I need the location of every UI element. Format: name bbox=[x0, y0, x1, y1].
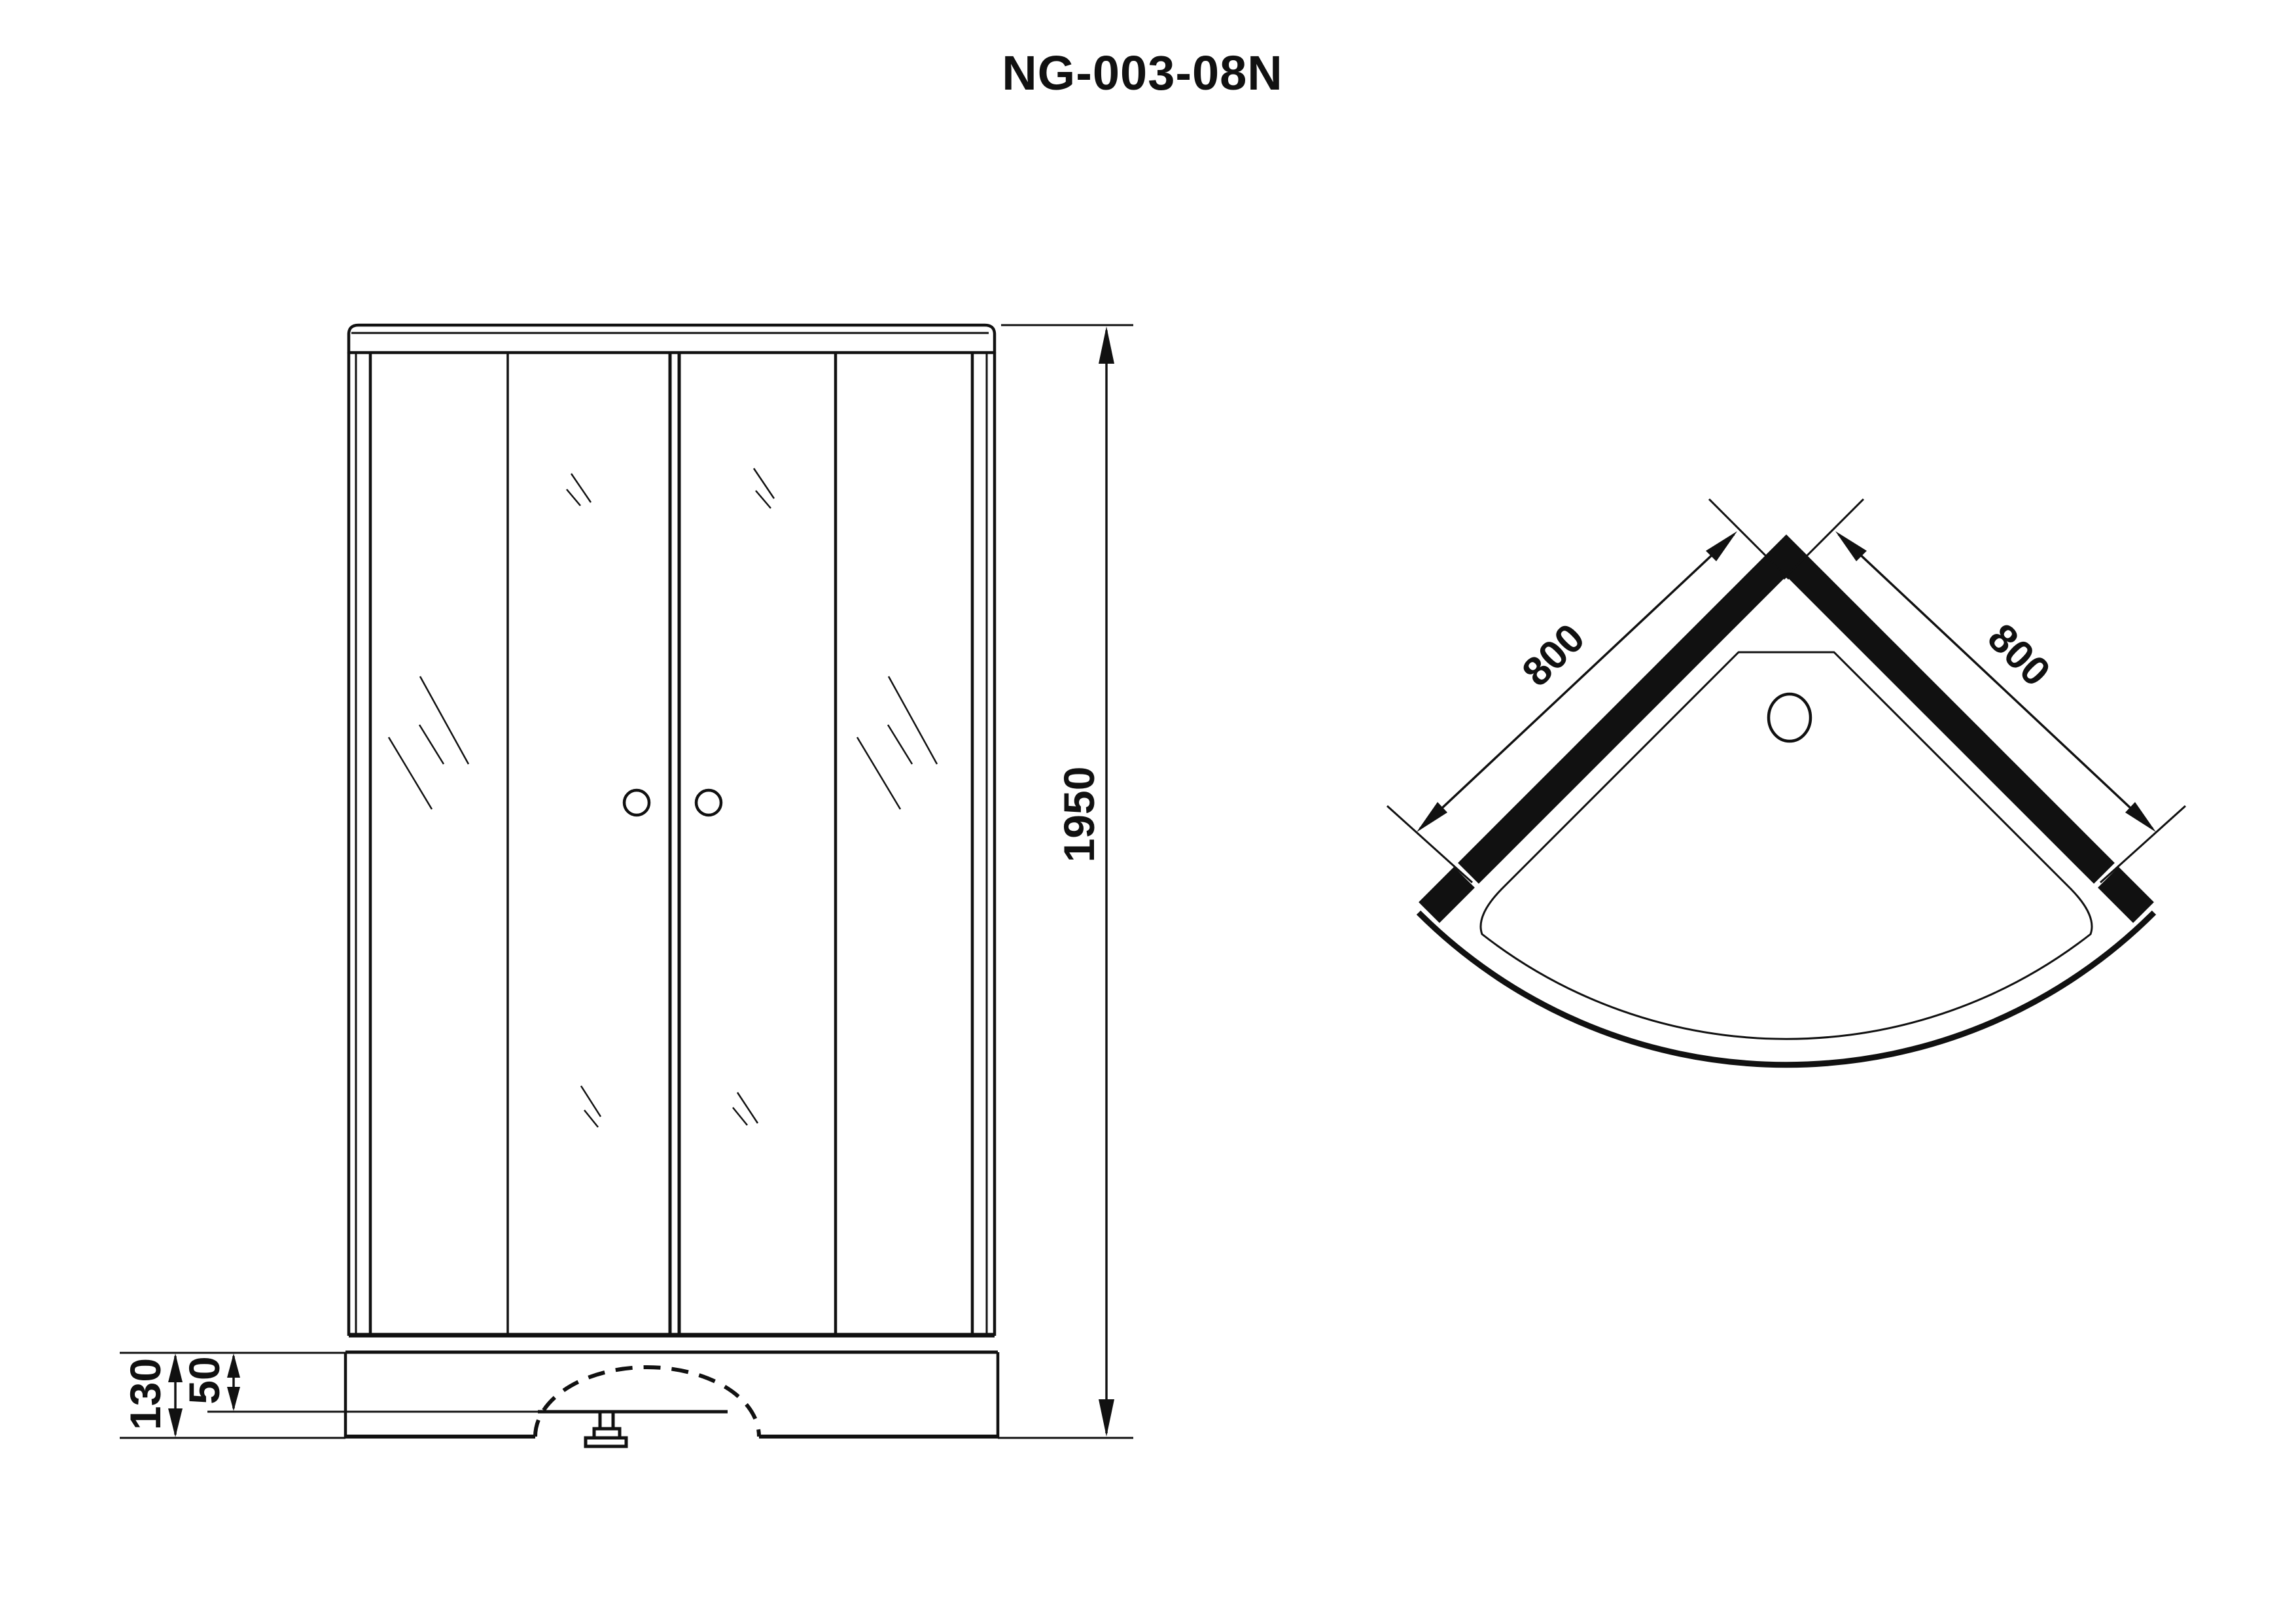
front-view bbox=[207, 325, 998, 1446]
dimension-label-left-side: 800 bbox=[1514, 616, 1594, 695]
apron-arch-dashed bbox=[535, 1367, 759, 1437]
dimension-label-base: 130 bbox=[121, 1358, 169, 1430]
arrow-up-icon bbox=[1099, 326, 1114, 364]
dimension-label-rim: 50 bbox=[180, 1356, 228, 1404]
arrow-down-icon bbox=[168, 1408, 183, 1437]
dimension-side-left: 800 bbox=[1387, 499, 1789, 882]
corner-wall-panels bbox=[1429, 545, 2144, 913]
extension-line-apex bbox=[1709, 499, 1789, 579]
dimension-tray-rim: 50 bbox=[180, 1353, 240, 1411]
right-door-handle bbox=[696, 790, 721, 815]
right-wall-end-profile bbox=[2108, 877, 2144, 913]
tray-inner-basin-outline bbox=[1481, 652, 2092, 1039]
technical-drawing-sheet: NG-003-08N bbox=[0, 0, 2296, 1623]
glass-hatch-marks bbox=[389, 468, 937, 1127]
arrow-up-icon bbox=[227, 1353, 240, 1378]
dimension-overall-height: 1950 bbox=[998, 325, 1133, 1438]
arrow-down-icon bbox=[227, 1387, 240, 1411]
left-wall-end-profile bbox=[1429, 877, 1464, 913]
drain-circle bbox=[1769, 694, 1810, 741]
right-wall-panel bbox=[1776, 545, 2104, 873]
left-door-handle bbox=[624, 790, 649, 815]
plan-view bbox=[1419, 545, 2154, 1065]
drawing-title: NG-003-08N bbox=[1002, 46, 1283, 100]
dimension-label-right-side: 800 bbox=[1979, 616, 2059, 695]
dimension-label-height: 1950 bbox=[1055, 767, 1103, 863]
left-wall-panel bbox=[1468, 545, 1797, 873]
extension-line-apex bbox=[1784, 499, 1863, 579]
drawing-canvas: NG-003-08N bbox=[0, 0, 2296, 1623]
tray-front-rim-arc bbox=[1419, 913, 2154, 1065]
leveling-foot bbox=[586, 1412, 626, 1446]
dimension-side-right: 800 bbox=[1784, 499, 2185, 882]
top-cap-outline bbox=[349, 325, 995, 353]
arrow-down-icon bbox=[1099, 1399, 1114, 1437]
apron-side-edges bbox=[345, 1352, 998, 1437]
